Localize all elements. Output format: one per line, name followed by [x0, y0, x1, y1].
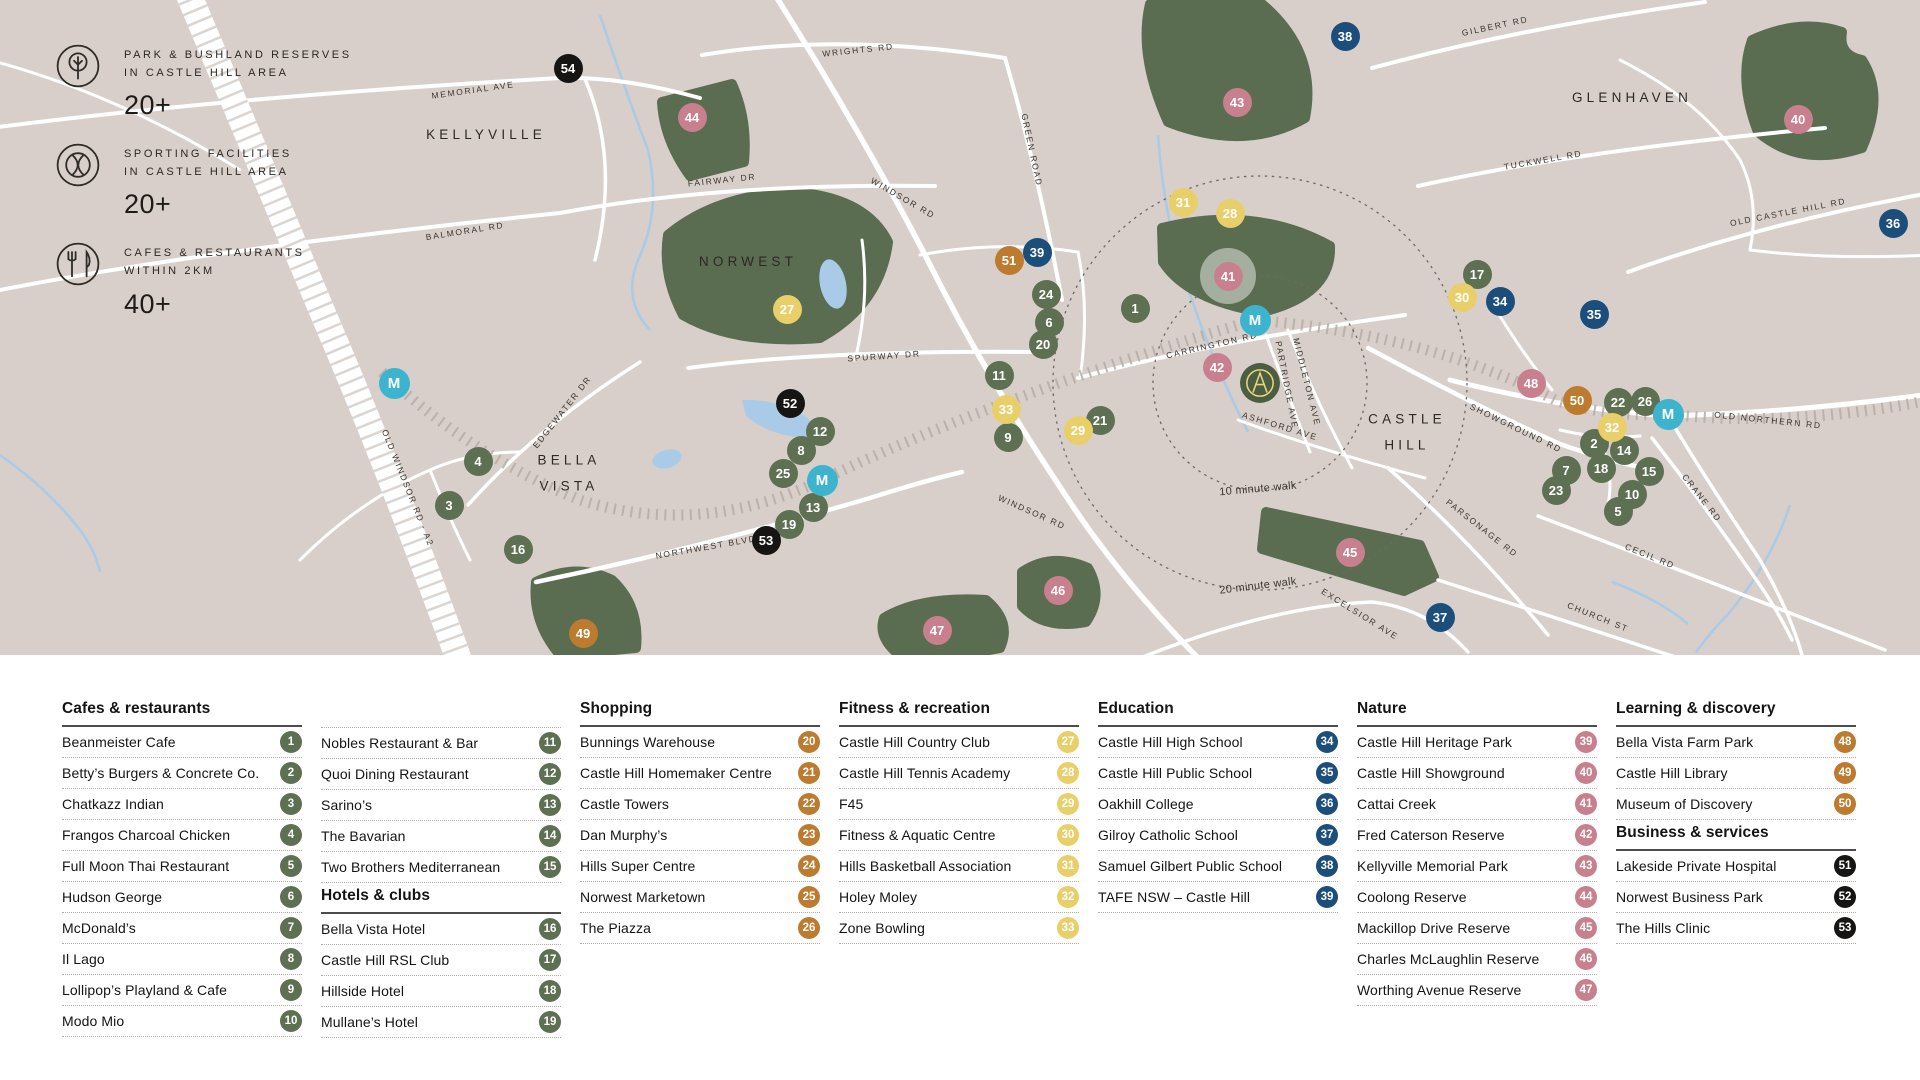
- legend-item-label: Hudson George: [62, 889, 162, 905]
- legend-item-list: Castle Hill Heritage Park39Castle Hill S…: [1357, 727, 1597, 1006]
- map-marker-25[interactable]: 25: [769, 459, 798, 488]
- legend-item-badge: 24: [798, 855, 820, 877]
- legend-item-badge: 30: [1057, 824, 1079, 846]
- legend-item-label: Castle Hill Heritage Park: [1357, 734, 1512, 750]
- legend-item-label: Mackillop Drive Reserve: [1357, 920, 1510, 936]
- legend-item-label: Betty’s Burgers & Concrete Co.: [62, 765, 259, 781]
- map-marker-49[interactable]: 49: [569, 619, 598, 648]
- legend-item-list: Castle Hill Country Club27Castle Hill Te…: [839, 727, 1079, 944]
- map-marker-35[interactable]: 35: [1580, 300, 1609, 329]
- map-marker-28[interactable]: 28: [1216, 199, 1245, 228]
- legend-item-badge: 48: [1834, 731, 1856, 753]
- legend-item-29[interactable]: F4529: [839, 789, 1079, 820]
- legend-item-list: Bunnings Warehouse20Castle Hill Homemake…: [580, 727, 820, 944]
- map-marker-3[interactable]: 3: [435, 491, 464, 520]
- legend-item-10[interactable]: Modo Mio10: [62, 1006, 302, 1037]
- legend-item-24[interactable]: Hills Super Centre24: [580, 851, 820, 882]
- map-marker-48[interactable]: 48: [1517, 369, 1546, 398]
- legend-item-label: Il Lago: [62, 951, 105, 967]
- map-marker-45[interactable]: 45: [1336, 538, 1365, 567]
- legend-section-title: Hotels & clubs: [321, 883, 561, 914]
- legend-item-46[interactable]: Charles McLaughlin Reserve46: [1357, 944, 1597, 975]
- legend-item-12[interactable]: Quoi Dining Restaurant12: [321, 759, 561, 790]
- legend-item-badge: 33: [1057, 917, 1079, 939]
- legend-item-badge: 22: [798, 793, 820, 815]
- legend-item-list: Bella Vista Hotel16Castle Hill RSL Club1…: [321, 914, 561, 1038]
- legend-item-51[interactable]: Lakeside Private Hospital51: [1616, 851, 1856, 882]
- map: KELLYVILLENORWESTBELLAVISTACASTLEHILLGLE…: [0, 0, 1920, 655]
- legend-section-title: Shopping: [580, 696, 820, 727]
- map-marker-1[interactable]: 1: [1121, 294, 1150, 323]
- legend-item-label: The Bavarian: [321, 828, 405, 844]
- legend-item-badge: 13: [539, 794, 561, 816]
- legend-item-30[interactable]: Fitness & Aquatic Centre30: [839, 820, 1079, 851]
- legend-item-label: Full Moon Thai Restaurant: [62, 858, 229, 874]
- legend-item-badge: 25: [798, 886, 820, 908]
- legend-item-15[interactable]: Two Brothers Mediterranean15: [321, 852, 561, 883]
- legend-item-label: Chatkazz Indian: [62, 796, 164, 812]
- stat-sport: SPORTING FACILITIESIN CASTLE HILL AREA 2…: [56, 143, 352, 220]
- legend-item-badge: 17: [539, 949, 561, 971]
- legend-item-badge: 28: [1057, 762, 1079, 784]
- map-marker-53[interactable]: 53: [752, 526, 781, 555]
- legend-item-badge: 32: [1057, 886, 1079, 908]
- legend-item-41[interactable]: Cattai Creek41: [1357, 789, 1597, 820]
- stat-label: PARK & BUSHLAND RESERVESIN CASTLE HILL A…: [124, 47, 352, 82]
- map-marker-43[interactable]: 43: [1223, 88, 1252, 117]
- legend-section-title: Fitness & recreation: [839, 696, 1079, 727]
- legend-item-badge: 23: [798, 824, 820, 846]
- legend-item-8[interactable]: Il Lago8: [62, 944, 302, 975]
- legend-item-label: Hills Basketball Association: [839, 858, 1011, 874]
- legend-item-badge: 3: [280, 793, 302, 815]
- map-marker-40[interactable]: 40: [1784, 105, 1813, 134]
- legend-item-label: Gilroy Catholic School: [1098, 827, 1238, 843]
- map-marker-15[interactable]: 15: [1635, 457, 1664, 486]
- legend-column-5: EducationCastle Hill High School34Castle…: [1098, 696, 1338, 1038]
- tree-icon: [56, 44, 100, 88]
- legend-item-23[interactable]: Dan Murphy’s23: [580, 820, 820, 851]
- legend-item-label: Sarino’s: [321, 797, 372, 813]
- legend-item-badge: 29: [1057, 793, 1079, 815]
- legend-item-badge: 31: [1057, 855, 1079, 877]
- legend-item-5[interactable]: Full Moon Thai Restaurant5: [62, 851, 302, 882]
- stat-cafes: CAFES & RESTAURANTSWITHIN 2KM 40+: [56, 242, 352, 319]
- legend-item-label: Museum of Discovery: [1616, 796, 1753, 812]
- map-marker-11[interactable]: 11: [985, 361, 1014, 390]
- legend-column-6: NatureCastle Hill Heritage Park39Castle …: [1357, 696, 1597, 1038]
- legend-item-17[interactable]: Castle Hill RSL Club17: [321, 945, 561, 976]
- legend-item-13[interactable]: Sarino’s13: [321, 790, 561, 821]
- legend-item-badge: 14: [539, 825, 561, 847]
- legend-item-label: Lakeside Private Hospital: [1616, 858, 1776, 874]
- legend-item-label: Norwest Business Park: [1616, 889, 1763, 905]
- map-marker-47[interactable]: 47: [923, 616, 952, 645]
- legend-item-badge: 10: [280, 1010, 302, 1032]
- legend-item-35[interactable]: Castle Hill Public School35: [1098, 758, 1338, 789]
- legend-item-badge: 21: [798, 762, 820, 784]
- legend-item-badge: 44: [1575, 886, 1597, 908]
- tennis-icon: [56, 143, 100, 187]
- legend-item-label: Bunnings Warehouse: [580, 734, 715, 750]
- legend-item-list: Beanmeister Cafe1Betty’s Burgers & Concr…: [62, 727, 302, 1037]
- map-marker-20[interactable]: 20: [1029, 330, 1058, 359]
- metro-station-marker[interactable]: M: [379, 368, 410, 399]
- legend-item-27[interactable]: Castle Hill Country Club27: [839, 727, 1079, 758]
- legend-item-badge: 42: [1575, 824, 1597, 846]
- legend-item-badge: 45: [1575, 917, 1597, 939]
- legend-item-label: Coolong Reserve: [1357, 889, 1467, 905]
- stat-parks: PARK & BUSHLAND RESERVESIN CASTLE HILL A…: [56, 44, 352, 121]
- legend-item-badge: 4: [280, 824, 302, 846]
- map-marker-44[interactable]: 44: [678, 103, 707, 132]
- legend-item-list: Nobles Restaurant & Bar11Quoi Dining Res…: [321, 727, 561, 883]
- legend-item-label: Beanmeister Cafe: [62, 734, 176, 750]
- map-marker-42[interactable]: 42: [1203, 353, 1232, 382]
- legend-item-badge: 11: [539, 732, 561, 754]
- legend-item-label: Charles McLaughlin Reserve: [1357, 951, 1539, 967]
- map-marker-46[interactable]: 46: [1044, 576, 1073, 605]
- map-marker-37[interactable]: 37: [1426, 603, 1455, 632]
- legend-item-label: Castle Hill Public School: [1098, 765, 1252, 781]
- legend-item-26[interactable]: The Piazza26: [580, 913, 820, 944]
- legend-spacer: [321, 696, 561, 727]
- legend-item-label: McDonald’s: [62, 920, 136, 936]
- legend-item-label: Castle Hill High School: [1098, 734, 1243, 750]
- map-marker-13[interactable]: 13: [799, 493, 828, 522]
- legend-item-badge: 8: [280, 948, 302, 970]
- legend-item-label: Holey Moley: [839, 889, 917, 905]
- legend-column-4: Fitness & recreationCastle Hill Country …: [839, 696, 1079, 1038]
- legend-item-badge: 2: [280, 762, 302, 784]
- legend-item-label: Samuel Gilbert Public School: [1098, 858, 1282, 874]
- legend-item-label: Lollipop’s Playland & Cafe: [62, 982, 227, 998]
- legend-item-badge: 12: [539, 763, 561, 785]
- map-marker-36[interactable]: 36: [1879, 209, 1908, 238]
- legend-item-1[interactable]: Beanmeister Cafe1: [62, 727, 302, 758]
- legend-item-label: Zone Bowling: [839, 920, 925, 936]
- legend-item-45[interactable]: Mackillop Drive Reserve45: [1357, 913, 1597, 944]
- stat-value: 40+: [124, 289, 305, 320]
- stat-value: 20+: [124, 189, 292, 220]
- legend-item-badge: 39: [1316, 886, 1338, 908]
- legend-item-6[interactable]: Hudson George6: [62, 882, 302, 913]
- legend-item-9[interactable]: Lollipop’s Playland & Cafe9: [62, 975, 302, 1006]
- legend-item-label: Fitness & Aquatic Centre: [839, 827, 995, 843]
- legend-item-label: Castle Hill Homemaker Centre: [580, 765, 772, 781]
- legend-item-39[interactable]: Castle Hill Heritage Park39: [1357, 727, 1597, 758]
- legend-item-label: Kellyville Memorial Park: [1357, 858, 1508, 874]
- legend-item-50[interactable]: Museum of Discovery50: [1616, 789, 1856, 820]
- legend-item-4[interactable]: Frangos Charcoal Chicken4: [62, 820, 302, 851]
- map-marker-27[interactable]: 27: [773, 295, 802, 324]
- legend-item-badge: 34: [1316, 731, 1338, 753]
- map-marker-22[interactable]: 22: [1604, 388, 1633, 417]
- legend-item-label: Modo Mio: [62, 1013, 124, 1029]
- legend-item-badge: 35: [1316, 762, 1338, 784]
- map-marker-23[interactable]: 23: [1542, 476, 1571, 505]
- legend-item-48[interactable]: Bella Vista Farm Park48: [1616, 727, 1856, 758]
- map-marker-29[interactable]: 29: [1064, 416, 1093, 445]
- legend-section-title: Business & services: [1616, 820, 1856, 851]
- legend-item-label: Castle Hill Showground: [1357, 765, 1505, 781]
- map-marker-16[interactable]: 16: [504, 535, 533, 564]
- legend-column-1: Cafes & restaurantsBeanmeister Cafe1Bett…: [62, 696, 302, 1038]
- map-marker-33[interactable]: 33: [992, 395, 1021, 424]
- map-stats-panel: PARK & BUSHLAND RESERVESIN CASTLE HILL A…: [56, 44, 352, 342]
- legend-item-badge: 18: [539, 980, 561, 1002]
- legend-item-label: Norwest Marketown: [580, 889, 705, 905]
- legend: Cafes & restaurantsBeanmeister Cafe1Bett…: [0, 655, 1920, 1038]
- legend-item-badge: 53: [1834, 917, 1856, 939]
- legend-item-52[interactable]: Norwest Business Park52: [1616, 882, 1856, 913]
- stat-label: SPORTING FACILITIESIN CASTLE HILL AREA: [124, 146, 292, 181]
- legend-item-label: Castle Hill Tennis Academy: [839, 765, 1010, 781]
- legend-item-33[interactable]: Zone Bowling33: [839, 913, 1079, 944]
- cutlery-icon: [56, 242, 100, 286]
- legend-item-badge: 20: [798, 731, 820, 753]
- legend-item-badge: 41: [1575, 793, 1597, 815]
- legend-item-22[interactable]: Castle Towers22: [580, 789, 820, 820]
- legend-item-11[interactable]: Nobles Restaurant & Bar11: [321, 728, 561, 759]
- legend-item-36[interactable]: Oakhill College36: [1098, 789, 1338, 820]
- legend-item-label: Hillside Hotel: [321, 983, 404, 999]
- legend-item-label: Oakhill College: [1098, 796, 1194, 812]
- legend-item-label: Castle Towers: [580, 796, 669, 812]
- legend-item-20[interactable]: Bunnings Warehouse20: [580, 727, 820, 758]
- legend-item-14[interactable]: The Bavarian14: [321, 821, 561, 852]
- legend-item-badge: 43: [1575, 855, 1597, 877]
- metro-station-marker[interactable]: M: [1240, 305, 1271, 336]
- map-marker-24[interactable]: 24: [1032, 280, 1061, 309]
- legend-item-label: Quoi Dining Restaurant: [321, 766, 469, 782]
- legend-item-badge: 19: [539, 1011, 561, 1033]
- legend-section-title: Learning & discovery: [1616, 696, 1856, 727]
- legend-section-title: Nature: [1357, 696, 1597, 727]
- legend-item-badge: 7: [280, 917, 302, 939]
- legend-item-badge: 26: [798, 917, 820, 939]
- legend-item-7[interactable]: McDonald’s7: [62, 913, 302, 944]
- legend-item-label: Castle Hill Country Club: [839, 734, 990, 750]
- map-marker-52[interactable]: 52: [776, 389, 805, 418]
- legend-item-badge: 52: [1834, 886, 1856, 908]
- legend-item-label: TAFE NSW – Castle Hill: [1098, 889, 1250, 905]
- legend-item-label: Cattai Creek: [1357, 796, 1436, 812]
- legend-item-badge: 39: [1575, 731, 1597, 753]
- metro-station-marker[interactable]: M: [1653, 399, 1684, 430]
- legend-section-title: Cafes & restaurants: [62, 696, 302, 727]
- legend-item-badge: 51: [1834, 855, 1856, 877]
- page: KELLYVILLENORWESTBELLAVISTACASTLEHILLGLE…: [0, 0, 1920, 1080]
- legend-item-40[interactable]: Castle Hill Showground40: [1357, 758, 1597, 789]
- legend-item-badge: 46: [1575, 948, 1597, 970]
- map-marker-30[interactable]: 30: [1448, 283, 1477, 312]
- legend-item-49[interactable]: Castle Hill Library49: [1616, 758, 1856, 789]
- legend-item-badge: 37: [1316, 824, 1338, 846]
- map-marker-38[interactable]: 38: [1331, 22, 1360, 51]
- metro-station-marker[interactable]: M: [807, 465, 838, 496]
- legend-item-list: Bella Vista Farm Park48Castle Hill Libra…: [1616, 727, 1856, 820]
- map-marker-34[interactable]: 34: [1486, 287, 1515, 316]
- legend-item-32[interactable]: Holey Moley32: [839, 882, 1079, 913]
- legend-item-37[interactable]: Gilroy Catholic School37: [1098, 820, 1338, 851]
- legend-column-3: ShoppingBunnings Warehouse20Castle Hill …: [580, 696, 820, 1038]
- legend-column-2: Nobles Restaurant & Bar11Quoi Dining Res…: [321, 696, 561, 1038]
- legend-item-label: Castle Hill RSL Club: [321, 952, 449, 968]
- legend-item-label: Dan Murphy’s: [580, 827, 667, 843]
- legend-item-badge: 38: [1316, 855, 1338, 877]
- legend-item-2[interactable]: Betty’s Burgers & Concrete Co.2: [62, 758, 302, 789]
- map-marker-50[interactable]: 50: [1563, 386, 1592, 415]
- legend-item-label: Bella Vista Hotel: [321, 921, 425, 937]
- legend-item-badge: 36: [1316, 793, 1338, 815]
- legend-item-label: Hills Super Centre: [580, 858, 695, 874]
- legend-item-badge: 40: [1575, 762, 1597, 784]
- legend-item-badge: 6: [280, 886, 302, 908]
- legend-item-badge: 27: [1057, 731, 1079, 753]
- legend-item-list: Castle Hill High School34Castle Hill Pub…: [1098, 727, 1338, 913]
- map-marker-31[interactable]: 31: [1169, 188, 1198, 217]
- legend-item-badge: 47: [1575, 979, 1597, 1001]
- legend-item-label: Bella Vista Farm Park: [1616, 734, 1753, 750]
- legend-item-16[interactable]: Bella Vista Hotel16: [321, 914, 561, 945]
- legend-item-label: F45: [839, 796, 863, 812]
- map-marker-54[interactable]: 54: [554, 54, 583, 83]
- legend-item-label: Worthing Avenue Reserve: [1357, 982, 1521, 998]
- legend-item-label: Fred Caterson Reserve: [1357, 827, 1505, 843]
- stat-label: CAFES & RESTAURANTSWITHIN 2KM: [124, 245, 305, 280]
- legend-item-18[interactable]: Hillside Hotel18: [321, 976, 561, 1007]
- legend-item-34[interactable]: Castle Hill High School34: [1098, 727, 1338, 758]
- legend-item-badge: 5: [280, 855, 302, 877]
- legend-item-38[interactable]: Samuel Gilbert Public School38: [1098, 851, 1338, 882]
- legend-column-7: Learning & discoveryBella Vista Farm Par…: [1616, 696, 1856, 1038]
- legend-item-42[interactable]: Fred Caterson Reserve42: [1357, 820, 1597, 851]
- legend-item-list: Lakeside Private Hospital51Norwest Busin…: [1616, 851, 1856, 944]
- legend-item-badge: 16: [539, 918, 561, 940]
- map-marker-32[interactable]: 32: [1598, 413, 1627, 442]
- legend-item-44[interactable]: Coolong Reserve44: [1357, 882, 1597, 913]
- map-marker-4[interactable]: 4: [464, 447, 493, 476]
- legend-item-label: Nobles Restaurant & Bar: [321, 735, 478, 751]
- map-marker-51[interactable]: 51: [995, 246, 1024, 275]
- legend-item-3[interactable]: Chatkazz Indian3: [62, 789, 302, 820]
- legend-item-31[interactable]: Hills Basketball Association31: [839, 851, 1079, 882]
- legend-item-21[interactable]: Castle Hill Homemaker Centre21: [580, 758, 820, 789]
- legend-item-label: Castle Hill Library: [1616, 765, 1728, 781]
- legend-item-label: The Piazza: [580, 920, 651, 936]
- map-marker-12[interactable]: 12: [806, 417, 835, 446]
- legend-item-label: Two Brothers Mediterranean: [321, 859, 500, 875]
- legend-item-badge: 9: [280, 979, 302, 1001]
- legend-item-badge: 15: [539, 856, 561, 878]
- legend-item-47[interactable]: Worthing Avenue Reserve47: [1357, 975, 1597, 1006]
- legend-item-label: Frangos Charcoal Chicken: [62, 827, 230, 843]
- legend-item-badge: 1: [280, 731, 302, 753]
- legend-item-label: Mullane’s Hotel: [321, 1014, 418, 1030]
- legend-item-19[interactable]: Mullane’s Hotel19: [321, 1007, 561, 1038]
- legend-section-title: Education: [1098, 696, 1338, 727]
- map-marker-39[interactable]: 39: [1023, 238, 1052, 267]
- legend-item-label: The Hills Clinic: [1616, 920, 1710, 936]
- legend-item-43[interactable]: Kellyville Memorial Park43: [1357, 851, 1597, 882]
- legend-item-39[interactable]: TAFE NSW – Castle Hill39: [1098, 882, 1338, 913]
- map-marker-41[interactable]: 41: [1214, 262, 1243, 291]
- legend-item-28[interactable]: Castle Hill Tennis Academy28: [839, 758, 1079, 789]
- legend-item-badge: 49: [1834, 762, 1856, 784]
- legend-item-25[interactable]: Norwest Marketown25: [580, 882, 820, 913]
- stat-value: 20+: [124, 90, 352, 121]
- legend-item-53[interactable]: The Hills Clinic53: [1616, 913, 1856, 944]
- legend-item-badge: 50: [1834, 793, 1856, 815]
- map-marker-18[interactable]: 18: [1587, 454, 1616, 483]
- map-marker-9[interactable]: 9: [994, 423, 1023, 452]
